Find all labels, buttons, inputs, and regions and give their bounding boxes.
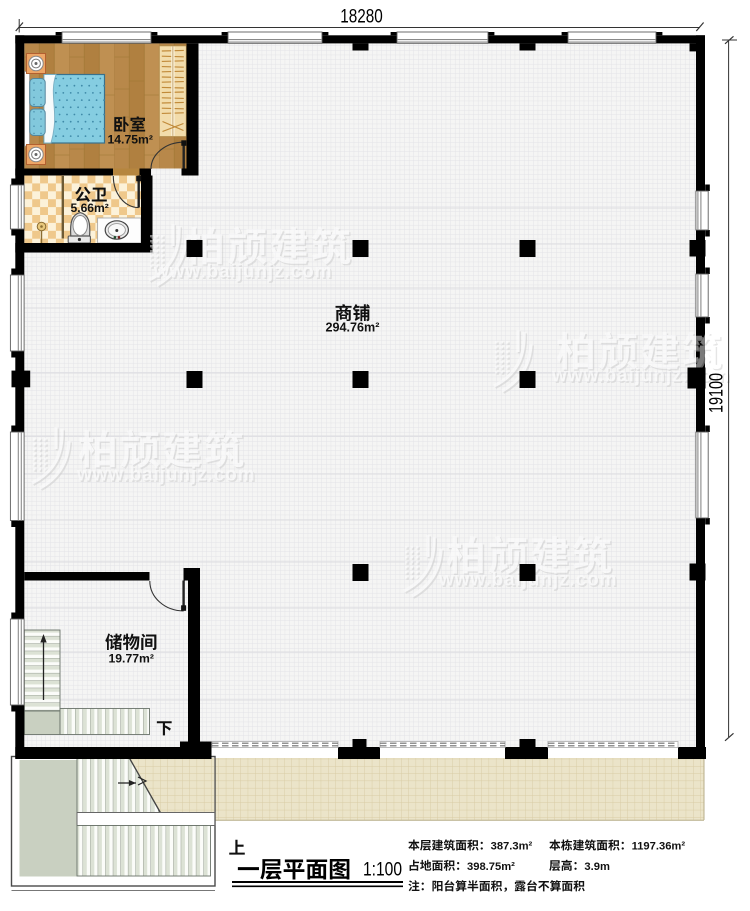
svg-text:294.76m²: 294.76m² bbox=[326, 321, 380, 335]
svg-text:www.baijunjz.com: www.baijunjz.com bbox=[76, 465, 255, 486]
svg-text:1197.36m²: 1197.36m² bbox=[632, 841, 686, 853]
svg-text:18280: 18280 bbox=[340, 7, 383, 28]
svg-text:19.77m²: 19.77m² bbox=[109, 652, 154, 666]
svg-text:14.75m²: 14.75m² bbox=[108, 133, 153, 147]
svg-text:5.66m²: 5.66m² bbox=[71, 201, 109, 215]
svg-text:398.75m²: 398.75m² bbox=[467, 861, 515, 873]
svg-text:www.baijunjz.com: www.baijunjz.com bbox=[153, 262, 332, 283]
svg-text:3.9m: 3.9m bbox=[584, 861, 610, 873]
svg-text:1:100: 1:100 bbox=[363, 860, 402, 881]
svg-text:387.3m²: 387.3m² bbox=[491, 841, 533, 853]
svg-text:19100: 19100 bbox=[707, 373, 728, 413]
